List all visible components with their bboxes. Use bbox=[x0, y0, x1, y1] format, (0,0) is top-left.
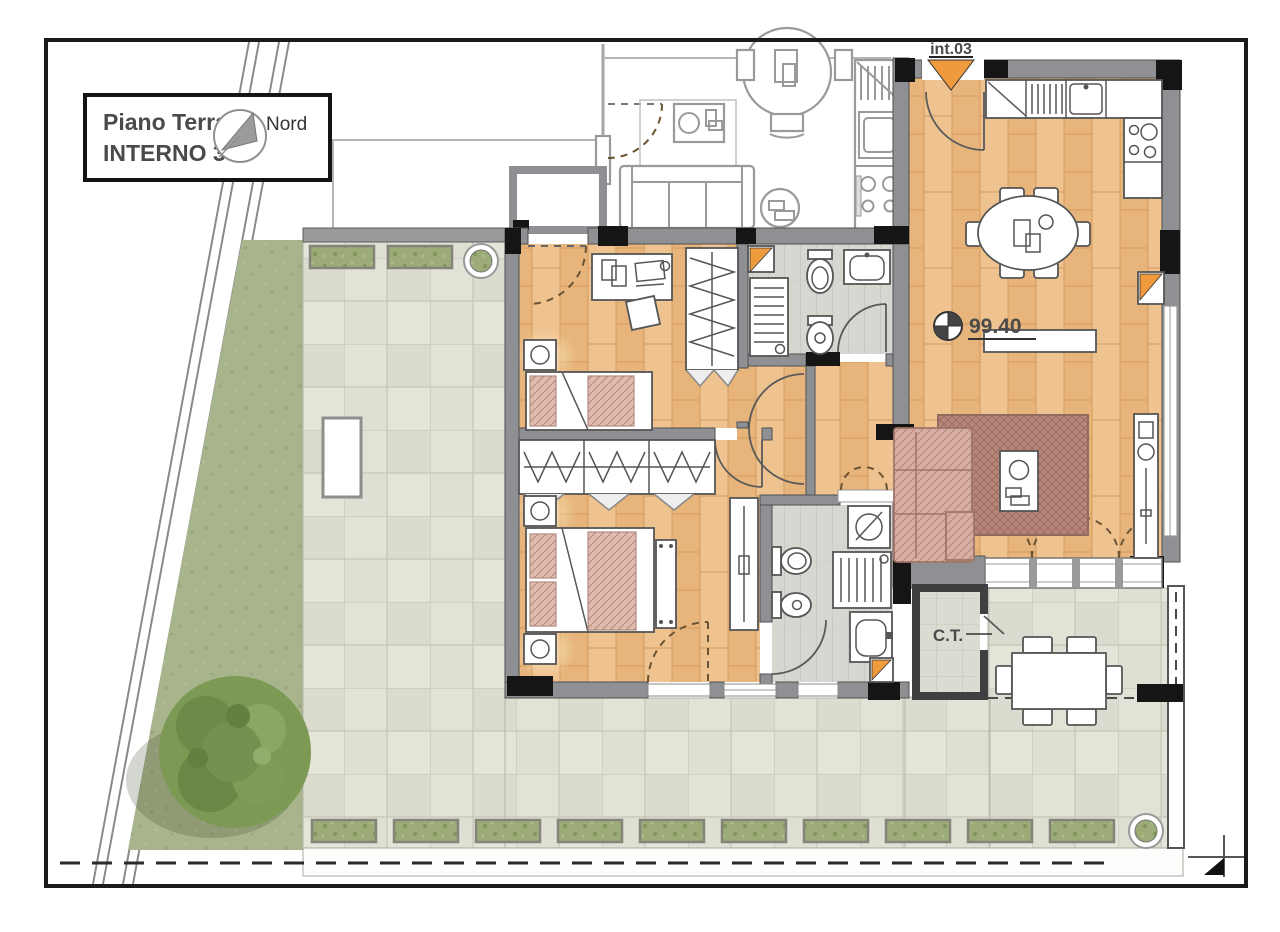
desk-chair bbox=[626, 296, 660, 330]
boiler-room-label: C.T. bbox=[933, 626, 963, 645]
bidet-icon bbox=[807, 316, 833, 354]
pillow bbox=[530, 376, 556, 426]
round-planter-top bbox=[464, 244, 498, 278]
toilet-icon bbox=[807, 250, 833, 293]
washing-machine-icon bbox=[848, 506, 890, 548]
entrance-label: int.03 bbox=[930, 41, 972, 58]
bench bbox=[656, 540, 676, 628]
desk bbox=[592, 254, 672, 300]
terrace-edge-wall bbox=[303, 228, 506, 242]
tv-unit bbox=[1134, 414, 1158, 558]
floor-title: Piano Terra bbox=[103, 109, 228, 135]
nightstand bbox=[524, 496, 556, 526]
wardrobe bbox=[686, 248, 738, 386]
bidet-icon bbox=[772, 592, 811, 618]
terrace-boundary-wall bbox=[1168, 586, 1184, 848]
pillow bbox=[530, 534, 556, 578]
compass bbox=[214, 110, 266, 162]
neighbor-coffee-table bbox=[674, 104, 724, 142]
single-bed bbox=[526, 372, 652, 430]
dining-table bbox=[978, 196, 1078, 270]
floor-plan-page: int.03 99.40 C.T. Piano Terra INTERNO 3 … bbox=[0, 0, 1280, 932]
unit-title: INTERNO 3 bbox=[103, 140, 226, 166]
neighbor-sofa bbox=[620, 166, 754, 228]
wall-block bbox=[1137, 684, 1183, 702]
pillow bbox=[530, 582, 556, 626]
washbasin-icon bbox=[844, 250, 890, 284]
terrace-planter-box bbox=[323, 418, 361, 497]
nightstand bbox=[524, 634, 556, 664]
blanket bbox=[588, 532, 636, 630]
tall-cabinet bbox=[730, 498, 758, 630]
toilet-icon bbox=[772, 547, 811, 575]
level-marker bbox=[934, 312, 962, 340]
coffee-table bbox=[1000, 451, 1038, 511]
shower-icon bbox=[833, 552, 891, 608]
sofa bbox=[894, 428, 974, 562]
towel-radiator-icon bbox=[750, 278, 788, 356]
washbasin-icon bbox=[850, 612, 893, 662]
outdoor-table bbox=[1012, 653, 1106, 709]
round-planter-bottom bbox=[1129, 814, 1163, 848]
blanket bbox=[588, 376, 634, 426]
floor-level-label: 99.40 bbox=[969, 315, 1022, 338]
neighbor-pouf bbox=[761, 189, 799, 227]
double-bed bbox=[526, 528, 654, 632]
title-box: Piano Terra INTERNO 3 Nord bbox=[85, 95, 330, 180]
floor-plan-drawing: int.03 99.40 C.T. Piano Terra INTERNO 3 … bbox=[0, 0, 1280, 932]
nightstand bbox=[524, 340, 556, 370]
compass-label: Nord bbox=[266, 114, 307, 135]
